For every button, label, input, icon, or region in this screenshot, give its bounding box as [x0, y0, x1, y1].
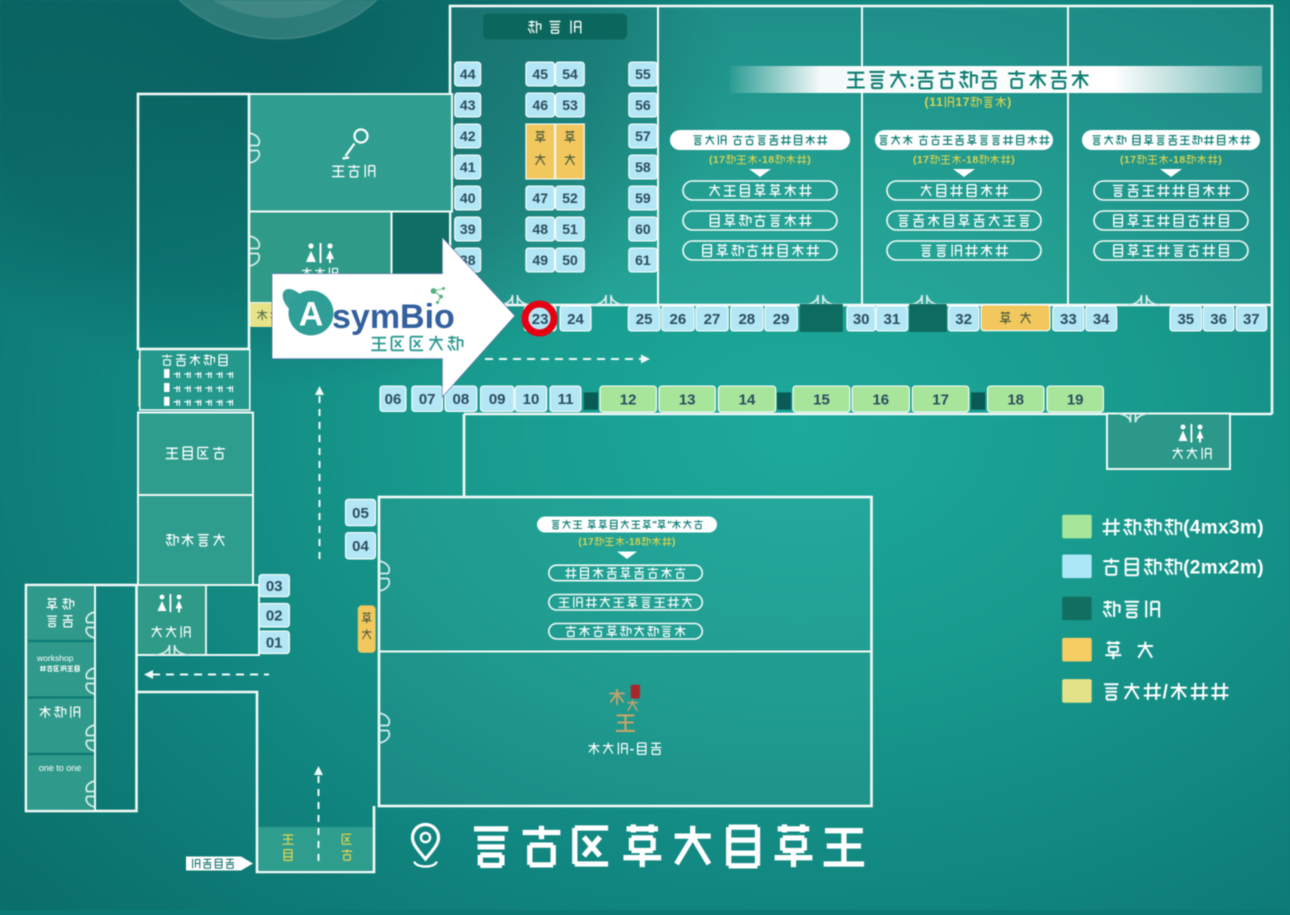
- svg-text:(17: (17: [913, 154, 929, 166]
- svg-text:50: 50: [562, 252, 578, 268]
- svg-text:16: 16: [872, 391, 889, 408]
- svg-text:48: 48: [532, 221, 548, 237]
- svg-text:34: 34: [1093, 311, 1110, 328]
- svg-text:09: 09: [489, 391, 506, 408]
- svg-text:): ): [807, 154, 811, 166]
- svg-text:17: 17: [932, 391, 949, 408]
- svg-text:one to one: one to one: [39, 763, 82, 773]
- svg-text:-18: -18: [962, 154, 978, 166]
- svg-text:-18: -18: [758, 154, 774, 166]
- svg-text:44: 44: [460, 66, 476, 82]
- svg-text:26: 26: [670, 311, 687, 328]
- svg-text:58: 58: [635, 159, 651, 175]
- svg-text:47: 47: [532, 190, 548, 206]
- svg-text:33: 33: [1060, 311, 1077, 328]
- svg-text:05: 05: [352, 505, 369, 522]
- svg-text:17: 17: [955, 95, 969, 109]
- svg-text:37: 37: [1243, 311, 1260, 328]
- svg-text:(17: (17: [578, 537, 594, 548]
- svg-text:14: 14: [739, 391, 756, 408]
- svg-text:18: 18: [1007, 391, 1024, 408]
- svg-text:55: 55: [635, 66, 651, 82]
- svg-text:/: /: [1163, 682, 1169, 703]
- svg-text::: :: [909, 69, 916, 91]
- svg-text:": ": [652, 520, 657, 531]
- svg-text:): ): [1011, 154, 1015, 166]
- svg-text:41: 41: [460, 159, 476, 175]
- svg-text:61: 61: [635, 252, 651, 268]
- svg-text:28: 28: [738, 311, 755, 328]
- svg-text:54: 54: [562, 66, 578, 82]
- svg-text:08: 08: [453, 391, 470, 408]
- svg-text:symBio: symBio: [332, 298, 455, 336]
- svg-text:24: 24: [567, 311, 584, 328]
- svg-text:53: 53: [562, 97, 578, 113]
- svg-text:(17: (17: [709, 154, 725, 166]
- svg-text:15: 15: [813, 391, 830, 408]
- svg-text:12: 12: [620, 391, 637, 408]
- svg-text:31: 31: [884, 311, 901, 328]
- svg-text:46: 46: [532, 97, 548, 113]
- svg-text:(2mx2m): (2mx2m): [1183, 557, 1264, 578]
- svg-text:(11: (11: [925, 95, 944, 109]
- svg-text:51: 51: [562, 221, 578, 237]
- svg-text:workshop: workshop: [36, 653, 74, 663]
- svg-text:-: -: [630, 741, 634, 756]
- svg-text:43: 43: [460, 97, 476, 113]
- svg-text:): ): [1007, 95, 1011, 109]
- svg-text:-18: -18: [1169, 154, 1185, 166]
- svg-text:(4mx3m): (4mx3m): [1183, 518, 1264, 539]
- svg-text:52: 52: [562, 190, 578, 206]
- svg-text:59: 59: [635, 190, 651, 206]
- svg-text:23: 23: [532, 311, 549, 328]
- svg-text:(17: (17: [1120, 154, 1136, 166]
- svg-text:13: 13: [679, 391, 696, 408]
- svg-text:32: 32: [955, 311, 972, 328]
- svg-text:36: 36: [1210, 311, 1227, 328]
- svg-text:): ): [1218, 154, 1222, 166]
- svg-text:): ): [672, 537, 675, 548]
- svg-text:40: 40: [460, 190, 476, 206]
- svg-text:19: 19: [1067, 391, 1084, 408]
- svg-text:35: 35: [1177, 311, 1194, 328]
- svg-text:": ": [667, 520, 672, 531]
- svg-text:49: 49: [532, 252, 548, 268]
- svg-text:04: 04: [352, 538, 369, 555]
- svg-text:03: 03: [266, 578, 283, 595]
- svg-text:45: 45: [532, 66, 548, 82]
- svg-text:A: A: [299, 296, 324, 334]
- svg-text:25: 25: [636, 311, 653, 328]
- svg-text:27: 27: [704, 311, 721, 328]
- svg-text:02: 02: [266, 608, 283, 625]
- svg-text:01: 01: [266, 635, 283, 652]
- svg-text:06: 06: [385, 391, 402, 408]
- svg-text:56: 56: [635, 97, 651, 113]
- svg-text:57: 57: [635, 128, 651, 144]
- svg-text:29: 29: [773, 311, 790, 328]
- svg-text:42: 42: [460, 128, 476, 144]
- svg-text:-18: -18: [625, 537, 641, 548]
- svg-text:11: 11: [558, 391, 574, 408]
- svg-text:39: 39: [460, 221, 476, 237]
- svg-text:30: 30: [853, 311, 870, 328]
- svg-text:10: 10: [523, 391, 540, 408]
- svg-text:07: 07: [419, 391, 436, 408]
- svg-text:60: 60: [635, 221, 651, 237]
